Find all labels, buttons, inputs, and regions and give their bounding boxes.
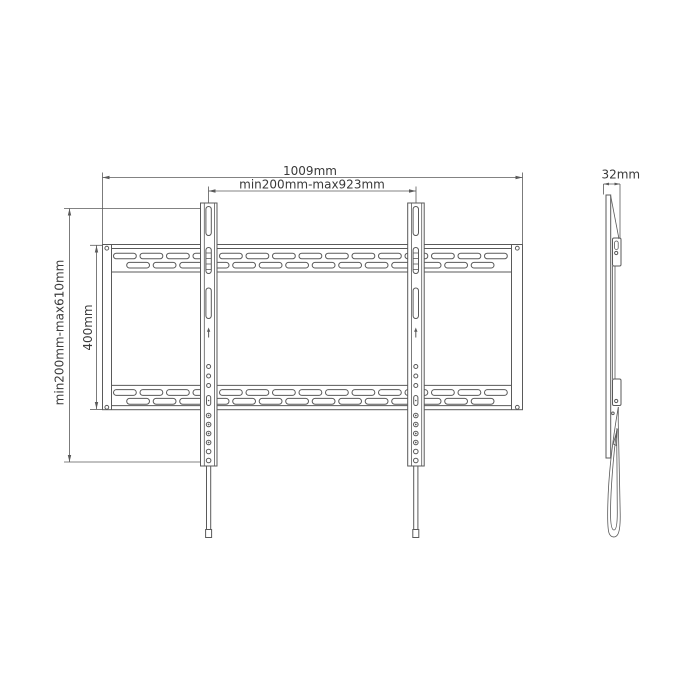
rail-slot xyxy=(180,262,203,268)
rail-slot xyxy=(127,398,150,404)
rail-slot xyxy=(153,262,176,268)
rail-slot xyxy=(233,262,256,268)
rail-slot xyxy=(114,390,137,396)
depth-label: 32mm xyxy=(601,167,640,181)
rail-slot xyxy=(445,262,468,268)
rail-slot xyxy=(246,390,269,396)
rail-slot xyxy=(299,253,322,259)
rail-slot xyxy=(326,390,349,396)
wall-plate xyxy=(103,245,523,410)
rail-slot xyxy=(365,398,388,404)
rail-slot xyxy=(286,398,309,404)
rail-slot xyxy=(127,262,150,268)
rail-slot xyxy=(167,253,190,259)
front-view: 1009mm min200mm-max923mm min200mm-max610… xyxy=(53,164,523,538)
side-profile xyxy=(606,195,621,458)
rail-slot xyxy=(485,253,508,259)
rail-slot xyxy=(246,253,269,259)
overall-width-label: 1009mm xyxy=(283,164,337,178)
dimension-mount-height-range: min200mm-max610mm xyxy=(53,209,201,463)
corner-screw-hole xyxy=(515,246,519,250)
rail-slot xyxy=(339,398,362,404)
rail-slot xyxy=(259,262,282,268)
rail-slot xyxy=(471,398,494,404)
rail-slot xyxy=(273,390,296,396)
corner-screw-hole xyxy=(105,246,109,250)
rail-slot xyxy=(233,398,256,404)
rail-slots xyxy=(114,253,508,404)
rail-slot xyxy=(312,262,335,268)
technical-drawing-page: 1009mm min200mm-max923mm min200mm-max610… xyxy=(0,0,700,700)
wall-mount-technical-drawing: 1009mm min200mm-max923mm min200mm-max610… xyxy=(0,0,700,700)
rail-slot xyxy=(365,262,388,268)
rail-slot xyxy=(140,253,163,259)
rail-slot xyxy=(140,390,163,396)
rail-slot xyxy=(259,398,282,404)
corner-screw-hole xyxy=(105,405,109,409)
rail-slot xyxy=(273,253,296,259)
rail-slot xyxy=(299,390,322,396)
rail-slot xyxy=(379,390,402,396)
dimension-depth: 32mm xyxy=(601,167,640,237)
rail-slot xyxy=(445,398,468,404)
plate-height-label: 400mm xyxy=(81,304,95,350)
dimension-mount-width-range: min200mm-max923mm xyxy=(209,178,417,203)
rail-slot xyxy=(458,253,481,259)
dimension-plate-height: 400mm xyxy=(81,245,103,409)
rail-slot xyxy=(339,262,362,268)
rail-slot xyxy=(458,390,481,396)
rail-slot xyxy=(220,253,243,259)
rail-slot xyxy=(153,398,176,404)
dimension-overall-width: 1009mm xyxy=(103,164,523,244)
vesa-bracket-right xyxy=(408,203,425,538)
rail-slot xyxy=(312,398,335,404)
rail-slot xyxy=(167,390,190,396)
rail-slot xyxy=(326,253,349,259)
pull-strap xyxy=(608,407,621,537)
side-view: 32mm xyxy=(601,167,640,537)
rail-slot xyxy=(352,390,375,396)
rail-slot xyxy=(432,253,455,259)
rail-slot xyxy=(432,390,455,396)
rail-slot xyxy=(286,262,309,268)
rail-slot xyxy=(180,398,203,404)
rail-slot xyxy=(379,253,402,259)
corner-screw-hole xyxy=(515,405,519,409)
mount-height-range-label: min200mm-max610mm xyxy=(53,260,67,406)
rail-slot xyxy=(471,262,494,268)
rail-slot xyxy=(352,253,375,259)
rail-slot xyxy=(485,390,508,396)
mount-width-range-label: min200mm-max923mm xyxy=(239,178,385,192)
rail-slot xyxy=(114,253,137,259)
rail-slot xyxy=(220,390,243,396)
vesa-bracket-left xyxy=(201,203,218,538)
